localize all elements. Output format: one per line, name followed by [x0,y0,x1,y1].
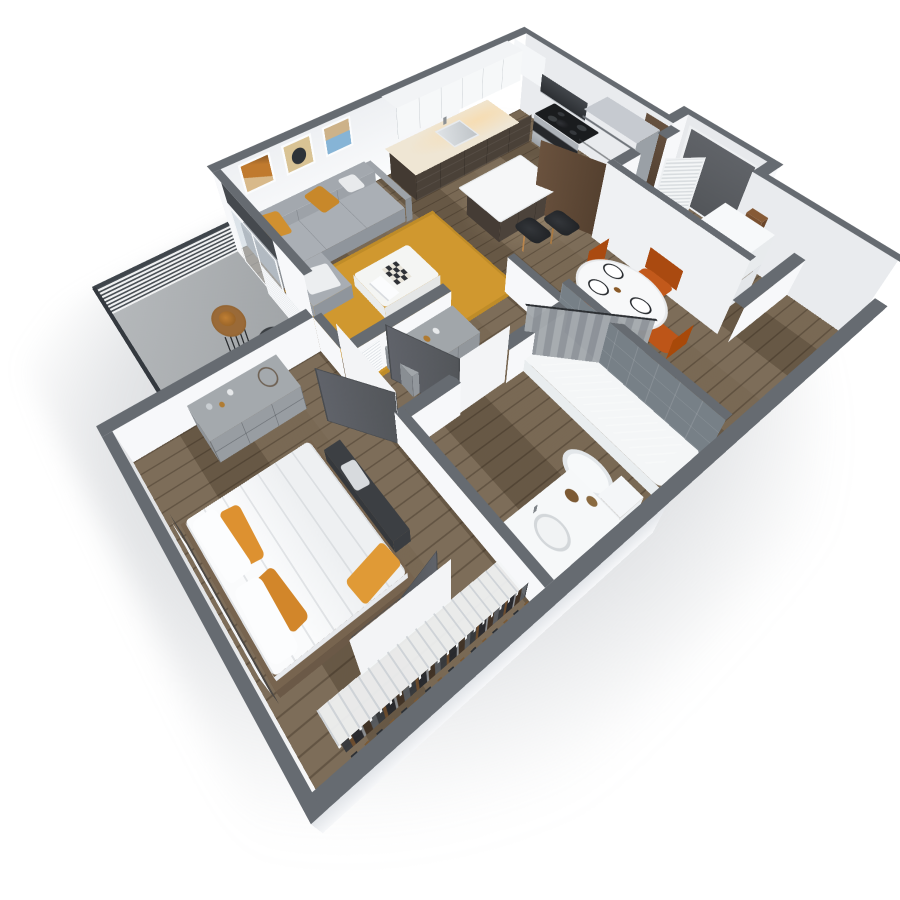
sofa-arm-e-front [405,197,412,222]
projection-squash [0,60,900,834]
projection-stage [0,60,900,834]
floor-plan-render [0,0,900,900]
